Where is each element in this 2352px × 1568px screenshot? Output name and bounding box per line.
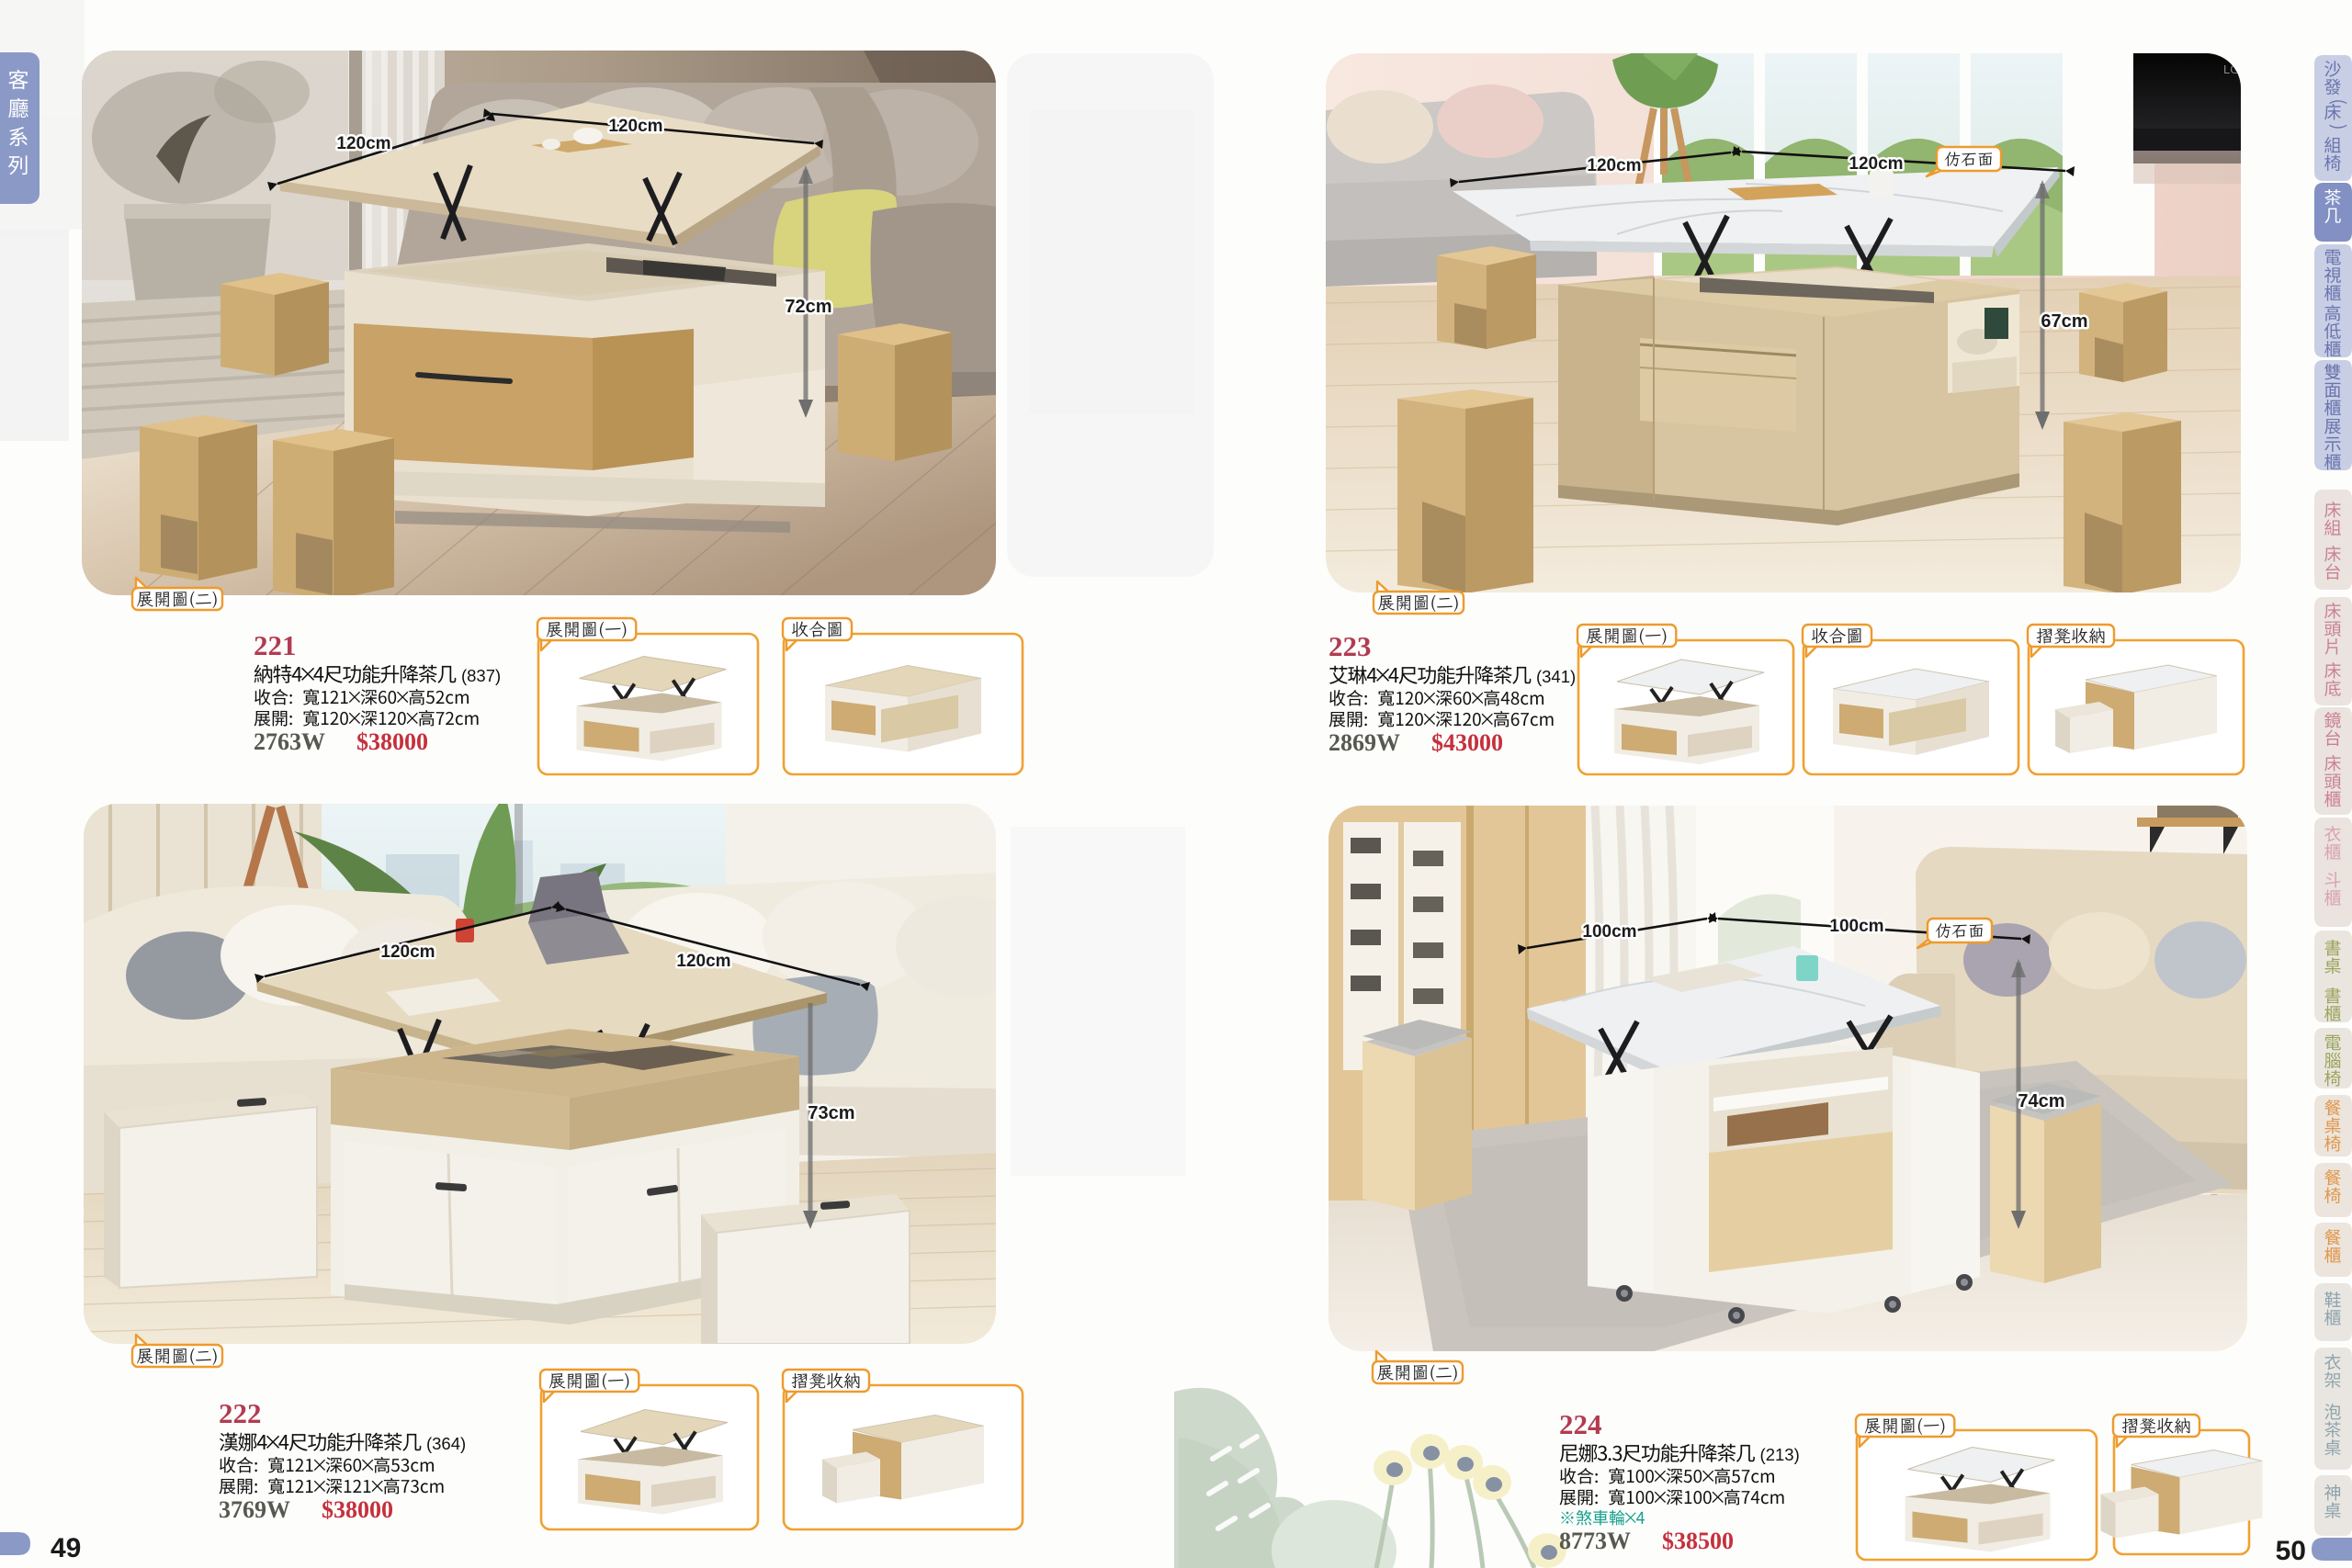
svg-text:120cm: 120cm	[608, 117, 662, 136]
svg-text:(341): (341)	[1536, 667, 1576, 686]
svg-text:222: 222	[219, 1397, 262, 1429]
svg-text:100cm: 100cm	[1829, 917, 1883, 936]
svg-text:$38000: $38000	[322, 1496, 393, 1523]
svg-text:120cm: 120cm	[380, 942, 435, 962]
svg-text:223: 223	[1329, 630, 1372, 662]
svg-text:72cm: 72cm	[785, 297, 831, 317]
svg-text:(837): (837)	[461, 666, 501, 685]
svg-text:67cm: 67cm	[2041, 311, 2087, 332]
svg-text:$38000: $38000	[356, 728, 428, 755]
svg-text:120cm: 120cm	[1849, 154, 1903, 174]
svg-text:221: 221	[254, 629, 297, 661]
svg-text:73cm: 73cm	[808, 1103, 854, 1123]
svg-text:(364): (364)	[426, 1434, 466, 1453]
svg-text:2869W: 2869W	[1329, 729, 1400, 756]
svg-text:$38500: $38500	[1662, 1528, 1734, 1554]
svg-text:8773W: 8773W	[1559, 1528, 1631, 1554]
svg-text:74cm: 74cm	[2018, 1091, 2064, 1111]
svg-text:120cm: 120cm	[1587, 156, 1641, 175]
svg-text:(213): (213)	[1760, 1445, 1800, 1464]
svg-text:100cm: 100cm	[1582, 922, 1636, 942]
svg-text:50: 50	[2276, 1536, 2306, 1566]
svg-text:224: 224	[1559, 1408, 1602, 1440]
svg-text:2763W: 2763W	[254, 728, 325, 755]
svg-text:$43000: $43000	[1431, 729, 1503, 756]
svg-text:49: 49	[51, 1533, 81, 1563]
svg-text:120cm: 120cm	[676, 952, 730, 971]
svg-text:3769W: 3769W	[219, 1496, 290, 1523]
svg-text:120cm: 120cm	[336, 134, 390, 153]
